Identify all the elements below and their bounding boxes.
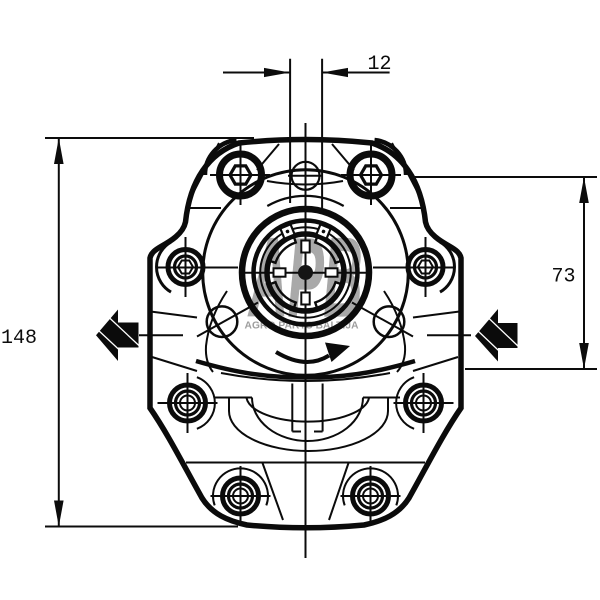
svg-text:12: 12 — [367, 53, 391, 76]
svg-text:73: 73 — [551, 266, 575, 289]
svg-text:148: 148 — [1, 327, 37, 350]
